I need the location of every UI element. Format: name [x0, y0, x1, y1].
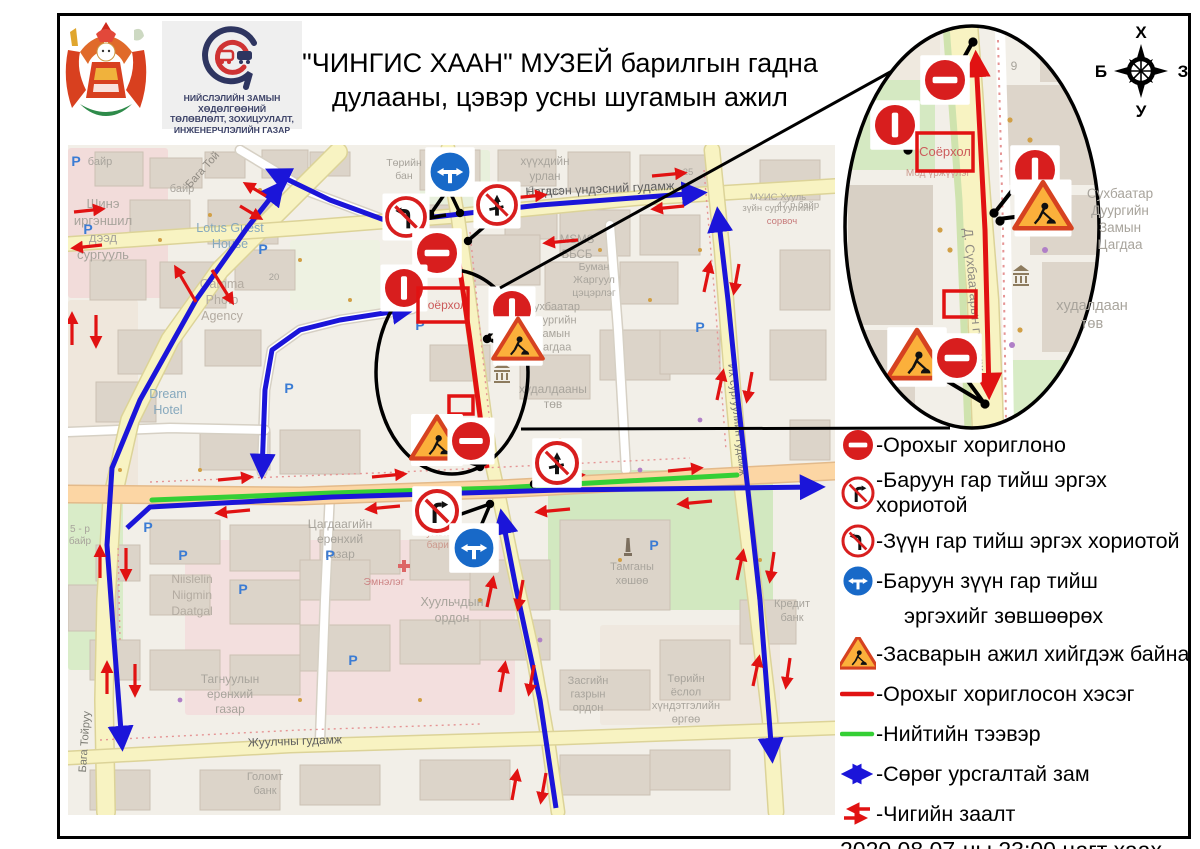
legend-label: -Орохыг хориглоно [876, 433, 1066, 458]
parking-icon: P [83, 221, 92, 237]
map-dot [418, 698, 422, 702]
legend: -Орохыг хориглоно-Баруун гар тийш эргэх … [840, 428, 1192, 849]
legend-label: -Нийтийн тээвэр [876, 722, 1041, 747]
no-left-icon [840, 524, 876, 558]
map-dot [758, 558, 762, 562]
map-label: NiislelinNiigminDaatgal [171, 572, 212, 618]
sign-no-left [843, 526, 873, 556]
parking-icon: P [348, 652, 357, 668]
compass-letter-w: Б [1095, 62, 1107, 81]
map-label: байр [88, 156, 112, 168]
sign-ne-h [920, 55, 970, 105]
building [300, 560, 370, 600]
map-label: сорвоч [767, 216, 797, 227]
sign-rw [840, 637, 876, 671]
sign-no-straight [532, 438, 582, 488]
map-label: Эмнэлэг [364, 576, 405, 588]
sign-mand [843, 566, 873, 596]
map-dot [937, 227, 942, 232]
anchor-dot [989, 208, 998, 217]
map-dot [638, 468, 643, 473]
parking-icon: P [143, 519, 152, 535]
rw-icon [840, 637, 876, 671]
building [300, 765, 380, 805]
building [790, 420, 830, 460]
legend-label: -Засварын ажил хийгдэж байна [876, 642, 1190, 667]
map-dot [1017, 327, 1022, 332]
map-dot [118, 468, 122, 472]
anchor-dot [968, 37, 977, 46]
legend-label: -Баруун гар тийш эргэх хориотой [876, 468, 1192, 518]
mand-icon [840, 564, 876, 598]
map-dot [158, 238, 162, 242]
map-label: 20 [269, 272, 280, 283]
anchor-dot [486, 500, 494, 508]
anchor-dot [980, 399, 989, 408]
anchor-dot [995, 216, 1004, 225]
sign-rw [1014, 179, 1071, 236]
map-label: Соёрхол [919, 144, 971, 159]
traffic-notice-poster: { "hdr":{ "t1":"\"ЧИНГИС ХААН\" МУЗЕЙ ба… [0, 0, 1200, 849]
map-dot [298, 698, 302, 702]
legend-item-7: -Сөрөг урсгалтай зам [840, 757, 1192, 791]
map-dot [947, 247, 952, 252]
sign-ne-h [447, 417, 494, 464]
building [620, 262, 678, 304]
building [650, 750, 730, 790]
sign-no-straight [473, 181, 520, 228]
anchor-dot [483, 335, 491, 343]
parking-icon: P [71, 153, 80, 169]
building [660, 330, 720, 374]
red-arrows-icon [840, 797, 876, 831]
sign-no-right [843, 478, 873, 508]
map-dot [478, 598, 482, 602]
legend-label-line2: эргэхийг зөвшөөрөх [904, 604, 1192, 629]
map-label: Засгийнгазрынордон [568, 675, 609, 714]
map-dot [298, 258, 302, 262]
building [230, 525, 310, 571]
legend-item-1: -Баруун гар тийш эргэх хориотой [840, 468, 1192, 518]
map-zone [290, 240, 380, 310]
map-dot [1027, 137, 1032, 142]
map-dot [598, 248, 602, 252]
legend-item-5: -Орохыг хориглосон хэсэг [840, 677, 1192, 711]
base-map: байрбайрБага ТойШинэиргэншилдээдсургууль… [68, 145, 835, 815]
green-line-icon [840, 717, 876, 751]
sign-mand [425, 147, 475, 197]
parking-icon: P [325, 547, 334, 563]
sign-mand [449, 523, 499, 573]
parking-icon: P [258, 241, 267, 257]
building [280, 430, 360, 474]
parking-icon: P [695, 319, 704, 335]
building [770, 330, 826, 380]
map-dot [348, 298, 352, 302]
map-dot [698, 248, 702, 252]
legend-item-0: -Орохыг хориглоно [840, 428, 1192, 462]
map-dot [538, 638, 543, 643]
compass-rose: ХУБЗ [1095, 23, 1188, 121]
closing-date: 2020.08.07-ны 23:00 цагт хаах [840, 837, 1192, 849]
legend-label: -Сөрөг урсгалтай зам [876, 762, 1090, 787]
red-line-icon [840, 677, 876, 711]
legend-item-3: -Баруун зүүн гар тийш [840, 564, 1192, 598]
legend-item-4: -Засварын ажил хийгдэж байна [840, 637, 1192, 671]
anchor-dot [456, 209, 464, 217]
map-label: 9 [1011, 59, 1018, 73]
parking-icon: P [178, 547, 187, 563]
legend-item-8: -Чигийн заалт [840, 797, 1192, 831]
ne-h-icon [840, 428, 876, 462]
legend-item-2: -Зүүн гар тийш эргэх хориотой [840, 524, 1192, 558]
minor-road [68, 428, 265, 432]
map-label: МУИС Хуульзүйн сургуулийн [742, 192, 813, 214]
map-dot [208, 213, 212, 217]
building [90, 260, 146, 300]
legend-label: -Зүүн гар тийш эргэх хориотой [876, 529, 1180, 554]
no-right-icon [840, 476, 876, 510]
blue-arrow-icon [840, 757, 876, 791]
map-dot [648, 298, 652, 302]
building [205, 330, 261, 366]
anchor-dot [464, 237, 472, 245]
building [560, 755, 650, 795]
building [780, 250, 830, 310]
building [640, 215, 700, 255]
building [400, 620, 480, 664]
building [300, 625, 390, 671]
sign-ne-h [932, 333, 982, 383]
legend-label: -Баруун зүүн гар тийш [876, 569, 1098, 594]
compass-letter-s: У [1136, 102, 1147, 121]
parking-icon: P [238, 581, 247, 597]
map-label: 5 - рбайр [69, 524, 92, 547]
legend-label: -Чигийн заалт [876, 802, 1015, 827]
map-dot [698, 418, 703, 423]
map-label: 25 [683, 167, 694, 178]
legend-item-6: -Нийтийн тээвэр [840, 717, 1192, 751]
map-zone [1040, 40, 1100, 82]
map-dot [1042, 247, 1048, 253]
compass-letter-n: Х [1135, 23, 1147, 42]
sign-ne-h [843, 430, 873, 460]
parking-icon: P [284, 380, 293, 396]
legend-label: -Орохыг хориглосон хэсэг [876, 682, 1134, 707]
map-dot [178, 698, 183, 703]
sign-ne-v [870, 100, 920, 150]
compass-letter-e: З [1178, 62, 1189, 81]
building [420, 760, 510, 800]
map-dot [1007, 117, 1012, 122]
map-dot [1009, 342, 1015, 348]
map-dot [198, 468, 202, 472]
map-zone [848, 185, 933, 325]
map-dot [618, 558, 622, 562]
sign-rw [493, 316, 543, 366]
parking-icon: P [649, 537, 658, 553]
